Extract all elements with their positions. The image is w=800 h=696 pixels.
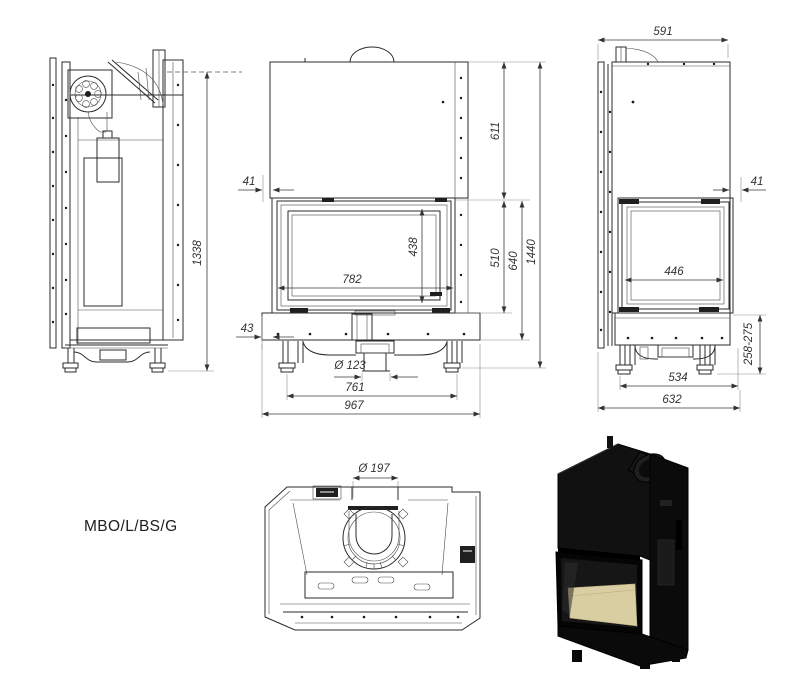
drawing-canvas: 1338: [0, 0, 800, 696]
dim-front-overall-width: 967: [344, 400, 364, 412]
dim-top-flue-diameter: Ø 197: [357, 463, 390, 475]
dim-front-feet-span: 761: [345, 382, 364, 394]
dim-front-outlet-diameter: Ø 123: [333, 360, 366, 372]
view-front: 41 43 782 438 Ø 123 761 967 611 510: [236, 47, 546, 418]
view-side-right: 591 41 446: [598, 26, 766, 412]
dim-right-front-inset: 41: [751, 176, 764, 188]
view-side-left: 1338: [50, 50, 242, 372]
dim-left-overall-height: 1338: [192, 240, 204, 266]
dim-right-overall-depth: 632: [662, 394, 682, 406]
render-3d-fireplace: [556, 436, 688, 669]
model-label: MBO/L/BS/G: [84, 518, 178, 536]
technical-drawing-sheet: 1338: [0, 0, 800, 696]
dim-front-top-inset: 41: [243, 176, 256, 188]
dim-front-firebox-height: 510: [490, 248, 502, 268]
dim-front-glass-height: 438: [408, 237, 420, 257]
dim-right-base-height-range: 258-275: [743, 322, 755, 366]
dim-front-overall-height: 1440: [526, 239, 538, 265]
dim-front-bottom-inset: 43: [241, 323, 254, 335]
dim-front-base-height: 640: [508, 251, 520, 271]
dim-front-glass-width: 782: [342, 274, 362, 286]
dim-right-overall-depth-top: 591: [653, 26, 672, 38]
dim-front-hood-height: 611: [490, 122, 502, 140]
dim-right-glass-width: 446: [664, 266, 684, 278]
dim-right-feet-span: 534: [668, 372, 687, 384]
view-top: Ø 197: [265, 463, 480, 630]
